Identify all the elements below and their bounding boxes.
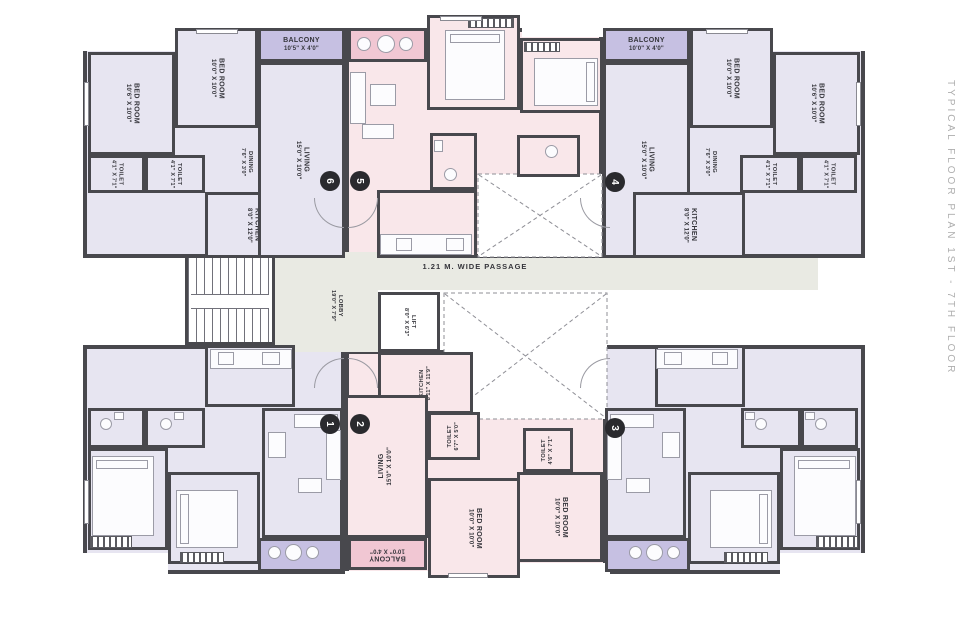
unit6-toilet-2: TOILET 4'1" X 7'1" <box>145 155 205 193</box>
room-label: BED ROOM 10'0" X 10'0" <box>723 58 739 99</box>
room-label: LIVING 15'0" X 10'0" <box>378 447 394 486</box>
balcony-table-icon <box>629 546 642 559</box>
unit4-dining-label: DINING 7'6" X 3'0" <box>688 134 732 190</box>
floor-plan-canvas: BED ROOM 10'6" X 10'0" BED ROOM 10'0" X … <box>0 0 957 625</box>
unit4-kitchen: KITCHEN 8'0" X 12'0" <box>633 192 745 258</box>
window-icon <box>440 16 482 21</box>
room-label: BED ROOM 10'6" X 10'0" <box>123 83 139 124</box>
unit-marker-5: 5 <box>350 171 370 191</box>
room-label: LIFT 8'0" X 6'3" <box>402 308 416 336</box>
balcony-table-icon <box>306 546 319 559</box>
unit4-bedroom-2: BED ROOM 10'0" X 10'0" <box>690 28 773 128</box>
window-icon <box>856 480 861 524</box>
wardrobe-icon <box>180 552 224 563</box>
room-label: BED ROOM 10'0" X 10'0" <box>208 58 224 99</box>
stove-icon <box>664 352 682 365</box>
wc-icon <box>160 418 172 430</box>
exterior-notch <box>80 24 175 51</box>
sink-icon <box>712 352 728 365</box>
duct-cross-icon <box>477 173 603 258</box>
room-label: DINING 7'6" X 3'0" <box>239 148 253 176</box>
lobby-label: LOBBY 19'0" X 7'9" <box>326 266 346 346</box>
window-icon <box>856 82 861 126</box>
lift-room: LIFT 8'0" X 6'3" <box>378 292 440 352</box>
washbasin-icon <box>434 140 443 152</box>
window-icon <box>84 82 89 126</box>
sofa-icon <box>350 72 366 124</box>
stove-icon <box>396 238 412 251</box>
room-label: TOILET 4'1" X 7'1" <box>110 160 124 188</box>
room-label: TOILET 4'1" X 7'1" <box>763 160 777 188</box>
room-label: BED ROOM 10'0" X 10'0" <box>466 508 482 549</box>
bed-pillow <box>96 460 148 469</box>
window-icon <box>84 480 89 524</box>
unit-marker-1: 1 <box>320 414 340 434</box>
unit2-toilet-1: TOILET 6'7" X 5'0" <box>428 412 480 460</box>
unit2-balcony: BALCONY 10'0" X 4'0" <box>348 538 427 570</box>
wc-icon <box>545 145 558 158</box>
balcony-table-icon <box>377 35 395 53</box>
bed-pillow <box>759 494 768 544</box>
washbasin-icon <box>805 412 815 420</box>
bed-pillow <box>586 62 595 102</box>
room-label: LIVING 15'0" X 10'0" <box>638 141 654 180</box>
room-label: BALCONY 10'0" X 4'0" <box>628 37 665 53</box>
window-icon <box>706 29 748 34</box>
unit6-toilet-1: TOILET 4'1" X 7'1" <box>88 155 145 193</box>
stair-landing <box>191 294 269 309</box>
unit4-balcony: BALCONY 10'0" X 4'0" <box>603 28 690 62</box>
washbasin-icon <box>745 412 755 420</box>
unit-marker-2: 2 <box>350 414 370 434</box>
exterior-notch <box>519 563 610 580</box>
exterior-notch <box>345 571 429 580</box>
bed-pillow <box>450 34 500 43</box>
room-label: DINING 7'6" X 3'0" <box>703 148 717 176</box>
balcony-table-icon <box>646 544 663 561</box>
unit6-bedroom-2: BED ROOM 10'0" X 10'0" <box>175 28 258 128</box>
wardrobe-icon <box>816 536 858 548</box>
wardrobe-icon <box>724 552 768 563</box>
table-icon <box>370 84 396 106</box>
unit4-toilet-2: TOILET 4'1" X 7'1" <box>800 155 857 193</box>
table-icon <box>268 432 286 458</box>
exterior-notch <box>80 553 168 577</box>
table-icon <box>662 432 680 458</box>
balcony-table-icon <box>357 37 371 51</box>
unit6-living: LIVING 15'0" X 10'0" <box>258 62 345 258</box>
room-label: TOILET 4'6" X 7'1" <box>541 436 555 464</box>
unit-marker-6: 6 <box>320 171 340 191</box>
bed-pillow <box>798 460 850 469</box>
passage-label: 1.21 M. WIDE PASSAGE <box>395 262 555 271</box>
plan-side-title: TYPICAL FLOOR PLAN 1ST - 7TH FLOOR <box>945 80 956 580</box>
room-label: BALCONY 10'0" X 4'0" <box>369 546 406 562</box>
sofa-icon <box>326 430 341 480</box>
balcony-table-icon <box>285 544 302 561</box>
balcony-table-icon <box>268 546 281 559</box>
table-icon <box>626 478 650 493</box>
washbasin-icon <box>174 412 184 420</box>
wc-icon <box>755 418 767 430</box>
unit2-bedroom-1: BED ROOM 10'0" X 10'0" <box>428 478 520 578</box>
unit6-balcony: BALCONY 10'5" X 4'0" <box>258 28 345 62</box>
room-label: TOILET 4'1" X 7'1" <box>168 160 182 188</box>
table-icon <box>298 478 322 493</box>
room-label: TOILET 4'1" X 7'1" <box>822 160 836 188</box>
unit2-bedroom-2: BED ROOM 10'0" X 10'0" <box>517 472 603 562</box>
room-label: LIVING 15'0" X 10'0" <box>293 141 309 180</box>
room-label: BALCONY 10'5" X 4'0" <box>283 37 320 53</box>
balcony-table-icon <box>399 37 413 51</box>
wc-icon <box>100 418 112 430</box>
room-label: BED ROOM 10'0" X 10'0" <box>552 497 568 538</box>
exterior-notch <box>522 24 608 37</box>
unit2-toilet-2: TOILET 4'6" X 7'1" <box>523 428 573 472</box>
unit4-bedroom-1: BED ROOM 10'6" X 10'0" <box>773 52 860 155</box>
window-icon <box>448 573 488 578</box>
room-label: KITCHEN 8'0" X 12'0" <box>681 208 697 243</box>
room-label: BED ROOM 10'6" X 10'0" <box>808 83 824 124</box>
wardrobe-icon <box>524 42 560 52</box>
wc-icon <box>444 168 457 181</box>
exterior-notch <box>780 553 868 577</box>
sofa-icon <box>362 124 394 139</box>
exterior-notch <box>773 24 868 51</box>
room-label: TOILET 6'7" X 5'0" <box>447 422 461 450</box>
washbasin-icon <box>114 412 124 420</box>
bed-pillow <box>180 494 189 544</box>
unit6-bedroom-1: BED ROOM 10'6" X 10'0" <box>88 52 175 155</box>
unit4-toilet-1: TOILET 4'1" X 7'1" <box>740 155 800 193</box>
stove-icon <box>262 352 280 365</box>
unit-marker-4: 4 <box>605 172 625 192</box>
wc-icon <box>815 418 827 430</box>
stair-icon <box>185 255 275 345</box>
window-icon <box>196 29 238 34</box>
wardrobe-icon <box>90 536 132 548</box>
unit-marker-3: 3 <box>605 418 625 438</box>
sink-icon <box>446 238 464 251</box>
balcony-table-icon <box>667 546 680 559</box>
sink-icon <box>218 352 234 365</box>
